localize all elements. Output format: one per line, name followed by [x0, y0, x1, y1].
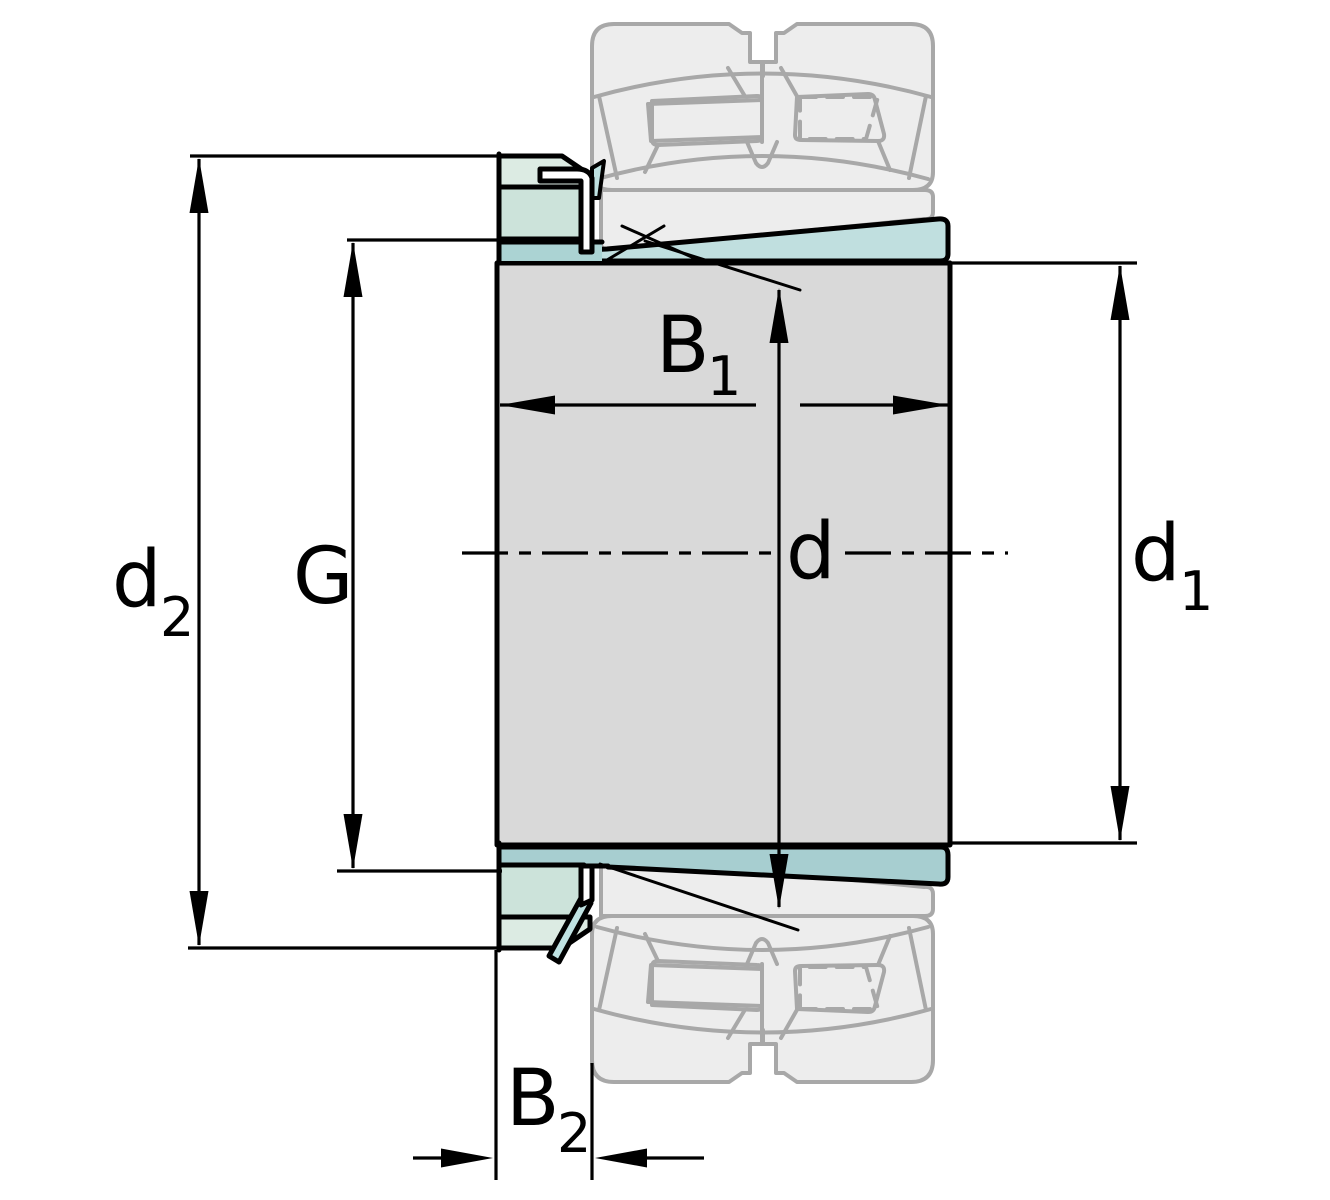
label-d: d: [786, 507, 836, 597]
nut-body-face: [499, 187, 584, 239]
label-b2: B2: [506, 1054, 591, 1165]
d2-arrowhead-bottom: [190, 891, 209, 946]
label-d1: d1: [1131, 509, 1213, 623]
ghost-bearing-bottom: [592, 856, 933, 1082]
label-d2: d2: [112, 535, 194, 649]
b2-arrowhead-right: [595, 1149, 647, 1168]
dimension-d1: [952, 263, 1137, 843]
ghost-bearing-top: [592, 24, 933, 250]
label-g: G: [293, 532, 353, 622]
technical-drawing-page: d2 G B1 d d1 B2: [0, 0, 1330, 1200]
g-arrowhead-top: [344, 242, 363, 297]
nut-body-face: [499, 865, 584, 917]
dimension-g: [337, 240, 502, 871]
washer-section: [581, 866, 592, 905]
d2-arrowhead-top: [190, 158, 209, 213]
b2-arrowhead-left: [441, 1149, 493, 1168]
d1-arrowhead-top: [1111, 265, 1130, 320]
g-arrowhead-bottom: [344, 814, 363, 869]
d1-arrowhead-bottom: [1111, 786, 1130, 841]
adapter-sleeve-dimension-drawing: d2 G B1 d d1 B2: [0, 0, 1330, 1200]
